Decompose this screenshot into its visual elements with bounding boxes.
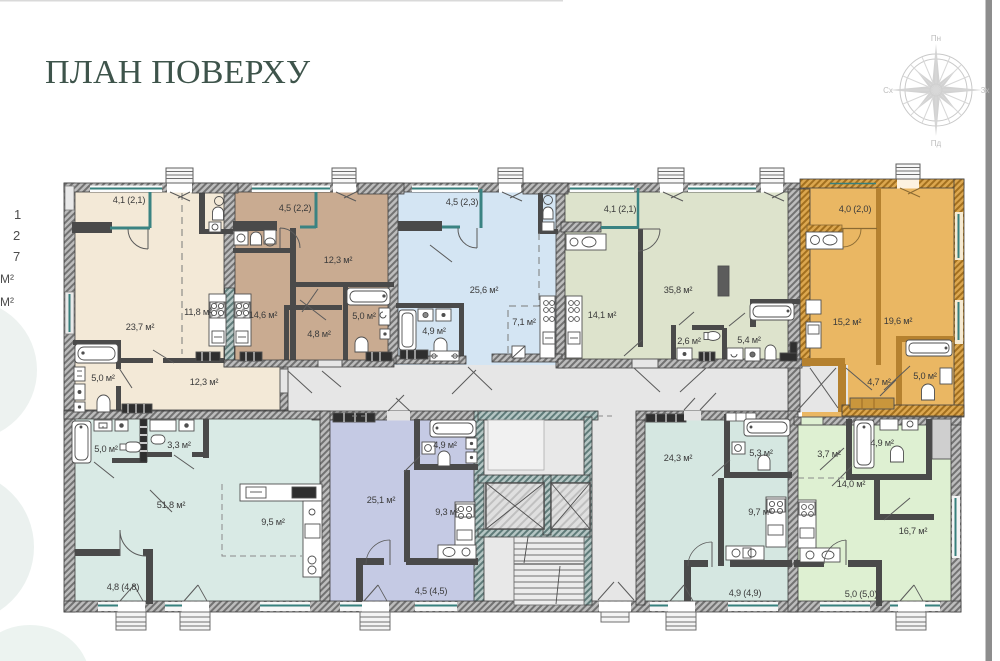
svg-text:4,9 м²: 4,9 м²	[870, 438, 894, 448]
svg-text:4,5 (4,5): 4,5 (4,5)	[415, 586, 448, 596]
svg-text:М²: М²	[0, 295, 14, 309]
svg-text:5,0 м²: 5,0 м²	[913, 371, 937, 381]
svg-text:25,6 м²: 25,6 м²	[470, 285, 499, 295]
svg-text:24,3 м²: 24,3 м²	[664, 453, 693, 463]
svg-text:4,8 (4,8): 4,8 (4,8)	[107, 582, 140, 592]
svg-text:5,0 (5,0): 5,0 (5,0)	[845, 589, 878, 599]
svg-text:3,7 м²: 3,7 м²	[817, 449, 841, 459]
svg-text:14,0 м²: 14,0 м²	[837, 479, 866, 489]
svg-text:12,3 м²: 12,3 м²	[324, 255, 353, 265]
svg-text:15,2 м²: 15,2 м²	[833, 317, 862, 327]
svg-text:7,1 м²: 7,1 м²	[512, 317, 536, 327]
svg-text:5,0 м²: 5,0 м²	[91, 373, 115, 383]
svg-text:4,1 (2,1): 4,1 (2,1)	[604, 204, 637, 214]
svg-text:ПЛАН ПОВЕРХУ: ПЛАН ПОВЕРХУ	[45, 54, 311, 91]
svg-text:1: 1	[14, 207, 21, 222]
svg-text:14,1 м²: 14,1 м²	[588, 310, 617, 320]
svg-text:4,9 (4,9): 4,9 (4,9)	[729, 588, 762, 598]
svg-text:Пд: Пд	[931, 139, 942, 148]
svg-text:5,4 м²: 5,4 м²	[737, 335, 761, 345]
svg-text:19,6 м²: 19,6 м²	[884, 316, 913, 326]
svg-text:14,6 м²: 14,6 м²	[249, 310, 278, 320]
svg-text:7: 7	[13, 249, 20, 264]
svg-text:4,0 (2,0): 4,0 (2,0)	[839, 204, 872, 214]
svg-text:4,8 м²: 4,8 м²	[307, 329, 331, 339]
svg-text:12,3 м²: 12,3 м²	[190, 377, 219, 387]
svg-text:5,0 м²: 5,0 м²	[352, 311, 376, 321]
svg-text:51,8 м²: 51,8 м²	[157, 500, 186, 510]
svg-text:16,7 м²: 16,7 м²	[899, 526, 928, 536]
svg-text:Зх: Зх	[981, 86, 990, 95]
svg-text:Сх: Сх	[883, 86, 893, 95]
svg-text:М²: М²	[0, 272, 14, 286]
svg-text:2: 2	[13, 228, 20, 243]
svg-text:9,7 м²: 9,7 м²	[748, 507, 772, 517]
svg-text:11,8 м²: 11,8 м²	[184, 307, 212, 317]
svg-text:4,9 м²: 4,9 м²	[422, 326, 446, 336]
svg-text:5,3 м²: 5,3 м²	[749, 448, 773, 458]
svg-text:Пн: Пн	[931, 34, 941, 43]
svg-text:4,5 (2,2): 4,5 (2,2)	[279, 203, 312, 213]
svg-text:4,1 (2,1): 4,1 (2,1)	[113, 195, 146, 205]
svg-text:25,1 м²: 25,1 м²	[367, 495, 396, 505]
svg-text:9,5 м²: 9,5 м²	[261, 517, 285, 527]
svg-text:3,3 м²: 3,3 м²	[167, 440, 191, 450]
svg-text:4,9 м²: 4,9 м²	[433, 440, 457, 450]
svg-text:9,3 м²: 9,3 м²	[435, 507, 459, 517]
svg-text:4,5 (2,3): 4,5 (2,3)	[446, 197, 479, 207]
svg-text:5,0 м²: 5,0 м²	[94, 444, 118, 454]
svg-text:35,8 м²: 35,8 м²	[664, 285, 693, 295]
svg-text:23,7 м²: 23,7 м²	[126, 322, 155, 332]
svg-text:2,6 м²: 2,6 м²	[677, 336, 701, 346]
svg-text:4,7 м²: 4,7 м²	[867, 377, 891, 387]
